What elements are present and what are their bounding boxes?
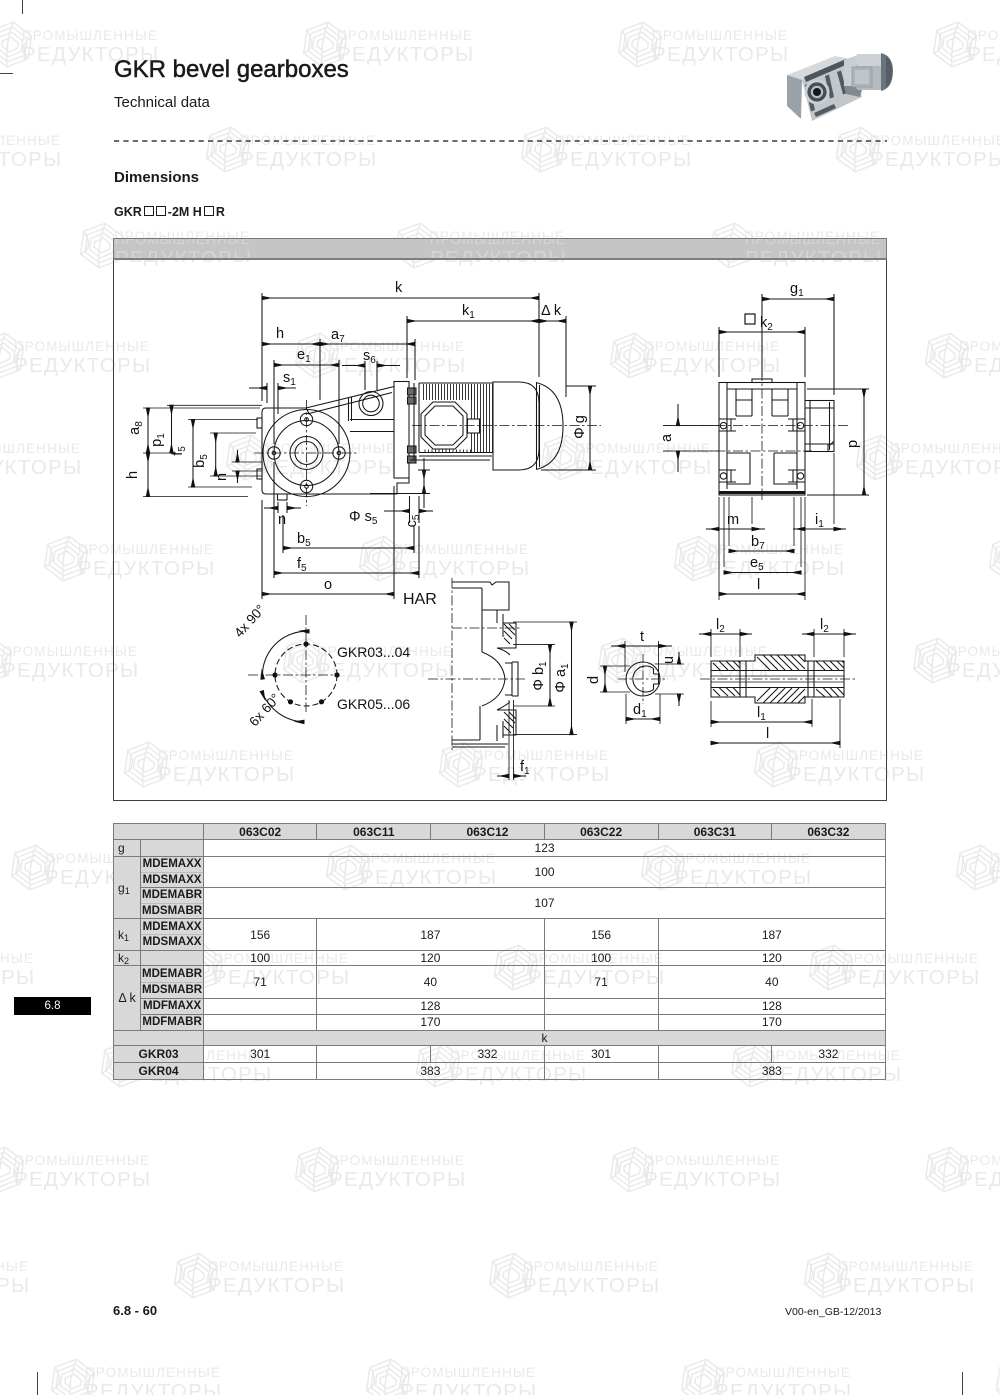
svg-text:k2: k2: [760, 315, 773, 333]
svg-text:b5: b5: [297, 531, 311, 549]
svg-text:s6: s6: [363, 348, 376, 366]
svg-text:l2: l2: [820, 617, 829, 635]
svg-text:Φ a1: Φ a1: [553, 663, 571, 693]
svg-text:l: l: [757, 577, 760, 593]
svg-text:n: n: [278, 512, 286, 528]
svg-text:GKR03...04: GKR03...04: [337, 644, 410, 660]
svg-text:p: p: [845, 440, 861, 448]
svg-text:o: o: [324, 577, 332, 593]
svg-text:l1: l1: [757, 705, 766, 723]
svg-text:a: a: [659, 433, 675, 442]
svg-text:k1: k1: [462, 303, 475, 321]
svg-text:Φ s5: Φ s5: [349, 509, 378, 527]
svg-text:m: m: [727, 512, 739, 528]
svg-text:g1: g1: [790, 281, 804, 299]
svg-text:GKR05...06: GKR05...06: [337, 696, 410, 712]
svg-text:Δ k: Δ k: [541, 303, 562, 319]
svg-text:l: l: [766, 726, 769, 742]
svg-text:Φ b1: Φ b1: [531, 661, 549, 691]
svg-text:f5: f5: [297, 556, 307, 574]
svg-text:HAR: HAR: [403, 591, 437, 608]
svg-text:d1: d1: [633, 702, 647, 720]
svg-text:e1: e1: [297, 347, 311, 365]
svg-text:u: u: [661, 656, 677, 664]
svg-text:i1: i1: [815, 512, 824, 530]
svg-text:4x 90°: 4x 90°: [231, 602, 268, 641]
svg-text:f1: f1: [520, 759, 530, 777]
svg-text:h: h: [276, 326, 284, 342]
svg-text:c5: c5: [404, 514, 422, 527]
svg-text:s1: s1: [283, 370, 296, 388]
svg-text:b5: b5: [192, 454, 210, 468]
svg-text:b7: b7: [751, 534, 765, 552]
svg-text:e5: e5: [750, 555, 764, 573]
svg-text:t: t: [640, 629, 644, 645]
svg-text:a8: a8: [127, 421, 145, 435]
svg-text:d: d: [586, 676, 602, 684]
svg-text:k: k: [395, 280, 403, 296]
svg-text:f5: f5: [170, 446, 188, 456]
svg-text:a7: a7: [331, 327, 345, 345]
svg-text:n: n: [214, 473, 230, 481]
svg-text:l2: l2: [716, 617, 725, 635]
svg-text:p1: p1: [149, 433, 167, 447]
svg-text:h: h: [125, 471, 141, 479]
svg-text:Φ g: Φ g: [572, 415, 588, 439]
